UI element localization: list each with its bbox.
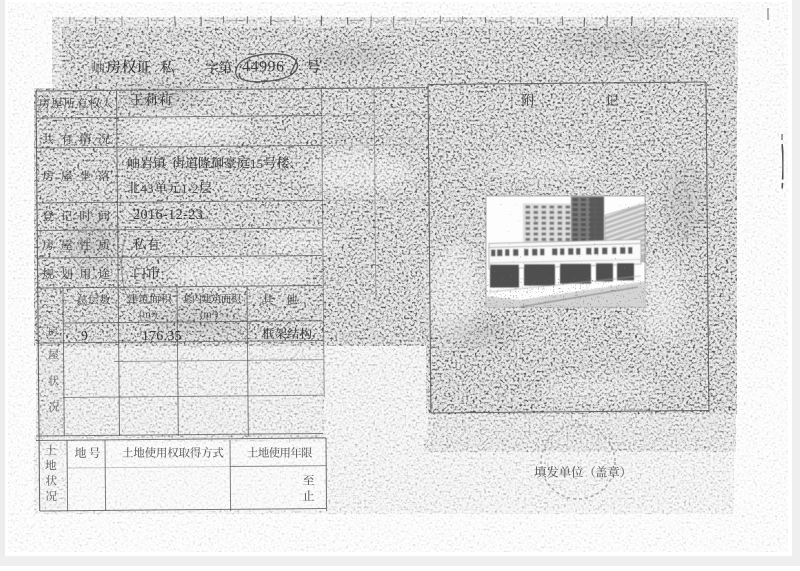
- svg-text:2016-12-23: 2016-12-23: [133, 207, 203, 223]
- svg-text:(m²): (m²): [200, 310, 219, 321]
- svg-text:(m²): (m²): [139, 310, 158, 321]
- svg-text:43: 43: [141, 181, 154, 196]
- svg-text:9: 9: [81, 328, 88, 343]
- svg-text:44996: 44996: [242, 59, 285, 76]
- svg-text:1-2: 1-2: [181, 181, 198, 196]
- svg-text:176.35: 176.35: [142, 328, 182, 343]
- svg-text:15: 15: [250, 156, 263, 171]
